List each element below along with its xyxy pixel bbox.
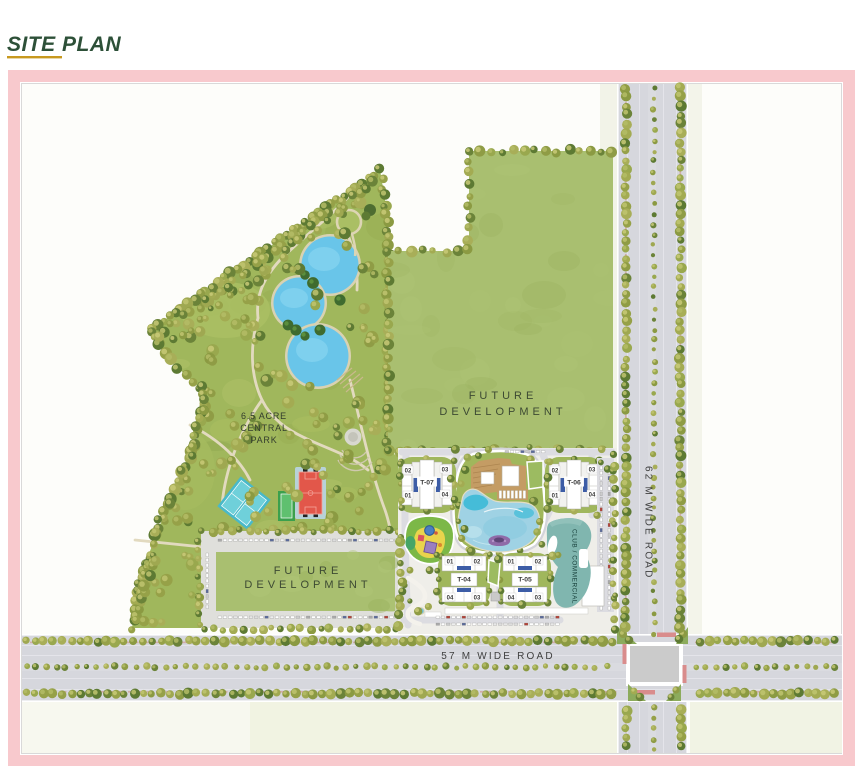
svg-text:01: 01 <box>447 560 454 566</box>
svg-text:03: 03 <box>442 468 449 474</box>
svg-text:04: 04 <box>508 596 515 602</box>
svg-text:FUTURE: FUTURE <box>274 565 343 577</box>
svg-text:01: 01 <box>405 494 412 500</box>
svg-text:02: 02 <box>474 560 481 566</box>
svg-text:03: 03 <box>589 468 596 474</box>
svg-text:T-04: T-04 <box>457 577 471 584</box>
svg-text:DEVELOPMENT: DEVELOPMENT <box>244 579 371 591</box>
svg-text:SITE PLAN: SITE PLAN <box>7 33 122 56</box>
svg-text:04: 04 <box>589 493 596 499</box>
svg-text:03: 03 <box>535 596 542 602</box>
svg-text:PARK: PARK <box>250 435 277 445</box>
svg-text:02: 02 <box>405 469 412 475</box>
svg-text:01: 01 <box>552 494 559 500</box>
svg-text:CLUB / COMMERCIAL: CLUB / COMMERCIAL <box>571 529 578 604</box>
svg-text:T-06: T-06 <box>567 480 581 487</box>
svg-text:6.5 ACRE: 6.5 ACRE <box>241 411 287 421</box>
svg-text:DEVELOPMENT: DEVELOPMENT <box>439 406 566 418</box>
svg-text:04: 04 <box>442 493 449 499</box>
svg-text:T-05: T-05 <box>518 577 532 584</box>
svg-text:04: 04 <box>447 596 454 602</box>
svg-text:01: 01 <box>508 560 515 566</box>
svg-text:02: 02 <box>552 469 559 475</box>
svg-text:57 M WIDE ROAD: 57 M WIDE ROAD <box>441 651 555 662</box>
svg-text:62 M WIDE ROAD: 62 M WIDE ROAD <box>643 466 654 580</box>
svg-text:02: 02 <box>535 560 542 566</box>
svg-text:CENTRAL: CENTRAL <box>240 423 288 433</box>
svg-text:T-07: T-07 <box>420 480 434 487</box>
svg-text:FUTURE: FUTURE <box>469 390 538 402</box>
svg-text:03: 03 <box>474 596 481 602</box>
